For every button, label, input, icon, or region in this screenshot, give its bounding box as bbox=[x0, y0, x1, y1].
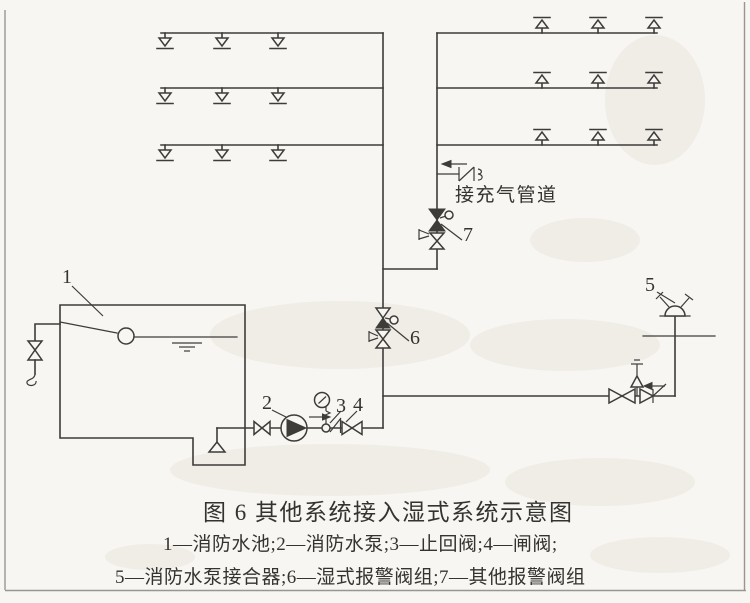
check-valve-icon bbox=[640, 384, 666, 403]
water-level-mark bbox=[172, 343, 202, 351]
inlet-pipe-and-valve bbox=[27, 324, 60, 385]
other-alarm-valve-group bbox=[419, 209, 462, 249]
callout-tank: 1 bbox=[62, 266, 72, 288]
upright-sprinkler-icon bbox=[534, 18, 550, 34]
flow-arrow-icon bbox=[644, 383, 652, 390]
gate-valve-icon bbox=[28, 341, 42, 350]
pendent-sprinkler-icon bbox=[270, 145, 286, 161]
pendent-sprinkler-icon bbox=[214, 145, 230, 161]
upright-sprinkler-icon bbox=[590, 73, 606, 89]
gate-valve-icon bbox=[430, 233, 444, 241]
pendent-sprinkler-icon bbox=[214, 33, 230, 49]
gate-valve-icon bbox=[254, 422, 262, 435]
callout-leader bbox=[72, 286, 103, 316]
pendent-sprinkler-icon bbox=[157, 145, 173, 161]
air-pipe-label: 接充气管道 bbox=[455, 184, 558, 206]
upright-sprinkler-icon bbox=[590, 18, 606, 34]
alarm-gong-icon bbox=[390, 316, 398, 324]
figure-caption: 图 6 其他系统接入湿式系统示意图 1—消防水池;2—消防水泵;3—止回阀;4—… bbox=[115, 500, 586, 588]
gate-valve-icon bbox=[342, 422, 352, 435]
upright-sprinkler-icon bbox=[534, 73, 550, 89]
pendent-sprinkler-icon bbox=[270, 88, 286, 104]
bleedthrough-smudges bbox=[105, 35, 730, 573]
callout-leader bbox=[441, 224, 462, 240]
siamese-connector-icon bbox=[656, 292, 693, 316]
pipe-break-icon bbox=[27, 374, 36, 385]
callout-gate-valve: 4 bbox=[353, 394, 363, 416]
suction-strainer bbox=[209, 428, 225, 452]
gate-valve-icon bbox=[430, 241, 444, 249]
float-ball-icon bbox=[118, 328, 134, 344]
check-valve bbox=[322, 418, 341, 433]
alarm-gong-icon bbox=[445, 211, 453, 219]
callout-other-alarm-valve: 7 bbox=[463, 224, 473, 246]
check-valve-hinge-icon bbox=[322, 424, 330, 432]
callout-check-valve: 3 bbox=[336, 395, 346, 417]
figure-title: 图 6 其他系统接入湿式系统示意图 bbox=[203, 500, 574, 525]
gate-valve-icon bbox=[352, 422, 362, 435]
alarm-valve-icon bbox=[429, 209, 445, 220]
air-charge-connection: 接充气管道 bbox=[437, 161, 558, 207]
figure-legend-line1: 1—消防水池;2—消防水泵;3—止回阀;4—闸阀; bbox=[163, 533, 558, 555]
foot-strainer-icon bbox=[209, 442, 225, 452]
pendent-sprinkler-icon bbox=[157, 33, 173, 49]
pendent-sprinkler-icon bbox=[270, 33, 286, 49]
gate-valve-icon bbox=[28, 350, 42, 360]
left-branch-lines bbox=[157, 33, 383, 161]
scanned-book-page: 接充气管道 bbox=[0, 0, 750, 603]
pendent-sprinkler-icon bbox=[157, 88, 173, 104]
gate-valve-icon bbox=[262, 422, 270, 435]
upright-sprinkler-icon bbox=[534, 130, 550, 146]
gate-valve-icon bbox=[609, 389, 622, 403]
piping-schematic: 接充气管道 bbox=[0, 0, 750, 603]
figure-legend-line2: 5—消防水泵接合器;6—湿式报警阀组;7—其他报警阀组 bbox=[115, 566, 586, 588]
callout-pump: 2 bbox=[262, 392, 272, 414]
callout-wet-alarm-valve: 6 bbox=[410, 327, 420, 349]
callout-leader bbox=[272, 410, 286, 417]
pendent-sprinkler-icon bbox=[214, 88, 230, 104]
upright-sprinkler-icon bbox=[590, 130, 606, 146]
fire-water-tank bbox=[27, 286, 245, 465]
gate-valve-icon bbox=[622, 389, 635, 403]
pipe-break-icon bbox=[478, 169, 482, 180]
flow-arrow-icon bbox=[442, 161, 451, 168]
callout-siamese: 5 bbox=[645, 274, 655, 296]
upright-sprinkler-icon bbox=[646, 18, 662, 34]
